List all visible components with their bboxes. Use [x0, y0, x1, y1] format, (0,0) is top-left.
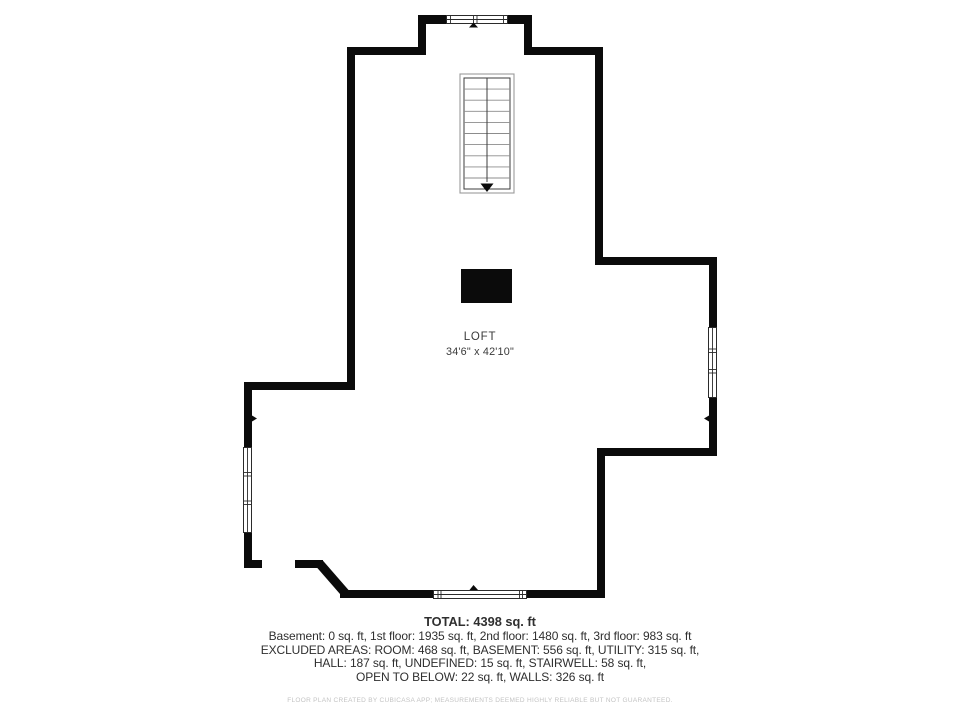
disclaimer: FLOOR PLAN CREATED BY CUBICASA APP; MEAS… — [0, 697, 960, 704]
wall-marker-icon — [252, 416, 257, 422]
wall-segment — [709, 257, 717, 328]
fireplace — [461, 269, 512, 303]
wall-segment — [709, 396, 717, 456]
excluded-areas-line-3: OPEN TO BELOW: 22 sq. ft, WALLS: 326 sq.… — [0, 671, 960, 685]
window-marker-icon — [470, 585, 479, 590]
wall-segment — [244, 382, 355, 390]
wall-segment — [340, 590, 434, 598]
room-dimensions: 34'6" x 42'10" — [380, 346, 580, 358]
wall-segment — [526, 590, 605, 598]
room-label: LOFT 34'6" x 42'10" — [380, 331, 580, 358]
window-bottom — [434, 585, 527, 599]
room-name: LOFT — [380, 331, 580, 343]
window-left — [244, 448, 252, 533]
wall-segment — [347, 47, 355, 390]
excluded-areas-line-2: HALL: 187 sq. ft, UNDEFINED: 15 sq. ft, … — [0, 657, 960, 671]
floor-areas-line: Basement: 0 sq. ft, 1st floor: 1935 sq. … — [0, 630, 960, 644]
staircase — [460, 74, 514, 193]
wall-segment — [244, 560, 262, 568]
floor-plan-page: LOFT 34'6" x 42'10" TOTAL: 4398 sq. ft B… — [0, 0, 960, 720]
window-right — [709, 328, 717, 398]
total-area: TOTAL: 4398 sq. ft — [0, 614, 960, 630]
wall-segment — [244, 382, 252, 448]
wall-segment — [347, 47, 426, 55]
area-summary: TOTAL: 4398 sq. ft Basement: 0 sq. ft, 1… — [0, 614, 960, 684]
wall-segment — [595, 257, 717, 265]
wall-marker-icon — [704, 416, 709, 422]
window-top — [447, 16, 508, 28]
wall-segment — [597, 448, 717, 456]
wall-segment-diagonal — [319, 563, 346, 594]
wall-segment — [595, 47, 603, 265]
wall-segment — [597, 448, 605, 598]
wall-segment — [524, 47, 603, 55]
excluded-areas-line-1: EXCLUDED AREAS: ROOM: 468 sq. ft, BASEME… — [0, 644, 960, 658]
floor-plan-drawing — [0, 0, 960, 720]
